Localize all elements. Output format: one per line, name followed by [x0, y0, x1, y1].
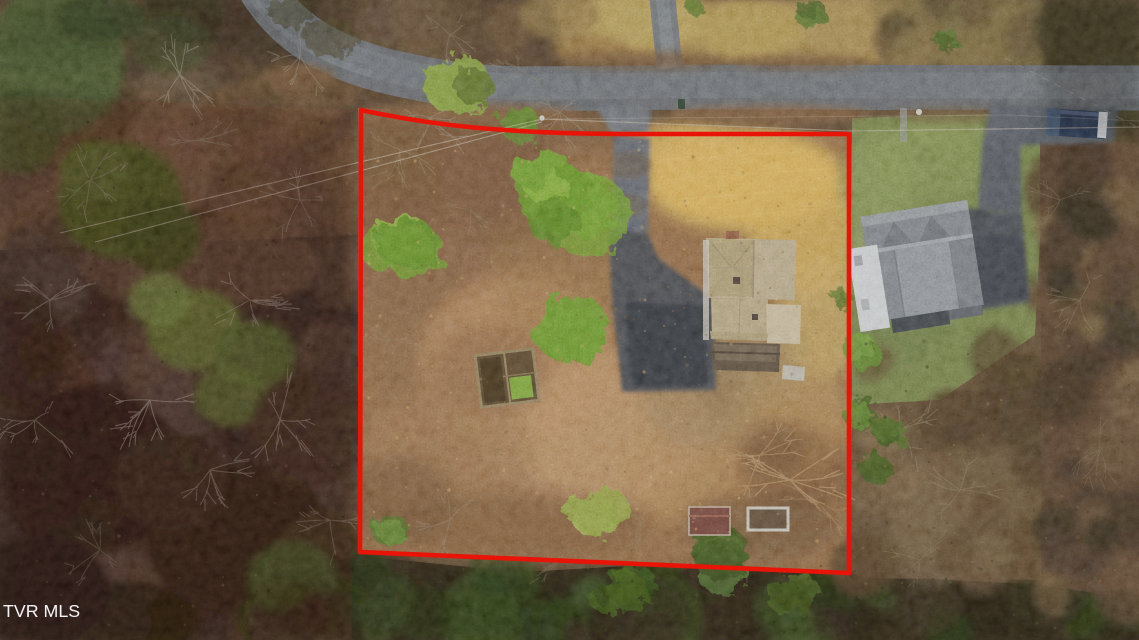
svg-text:TVR MLS: TVR MLS	[3, 601, 80, 621]
